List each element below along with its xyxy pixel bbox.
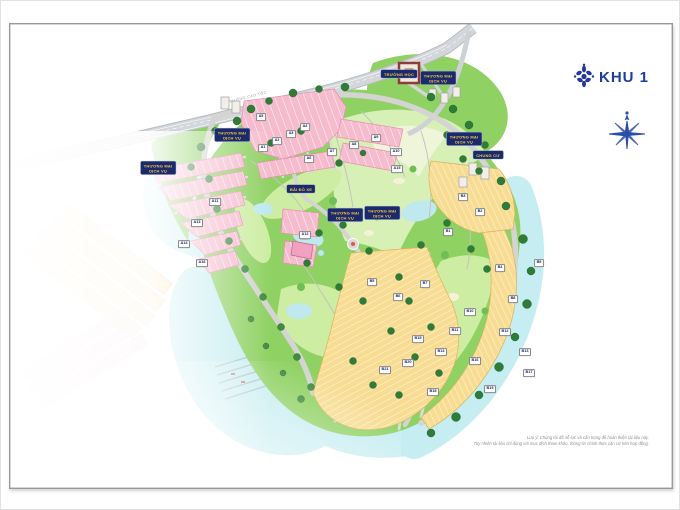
bottom-left-fade xyxy=(141,361,401,491)
lotus-icon xyxy=(571,63,595,91)
disclaimer-line-2: Tuy nhiên tài liệu chỉ dùng với mục đích… xyxy=(474,441,649,447)
compass-rose-icon xyxy=(605,105,649,153)
screenshot-canvas: THƯƠNG MẠI DỊCH VỤTHƯƠNG MẠI DỊCH VỤTRƯỜ… xyxy=(0,0,680,510)
project-header: KHU 1 xyxy=(571,63,649,91)
disclaimer-note: Lưu ý: Chúng tôi đã nỗ lực và cẩn trọng … xyxy=(474,435,649,448)
project-title: KHU 1 xyxy=(599,69,649,86)
